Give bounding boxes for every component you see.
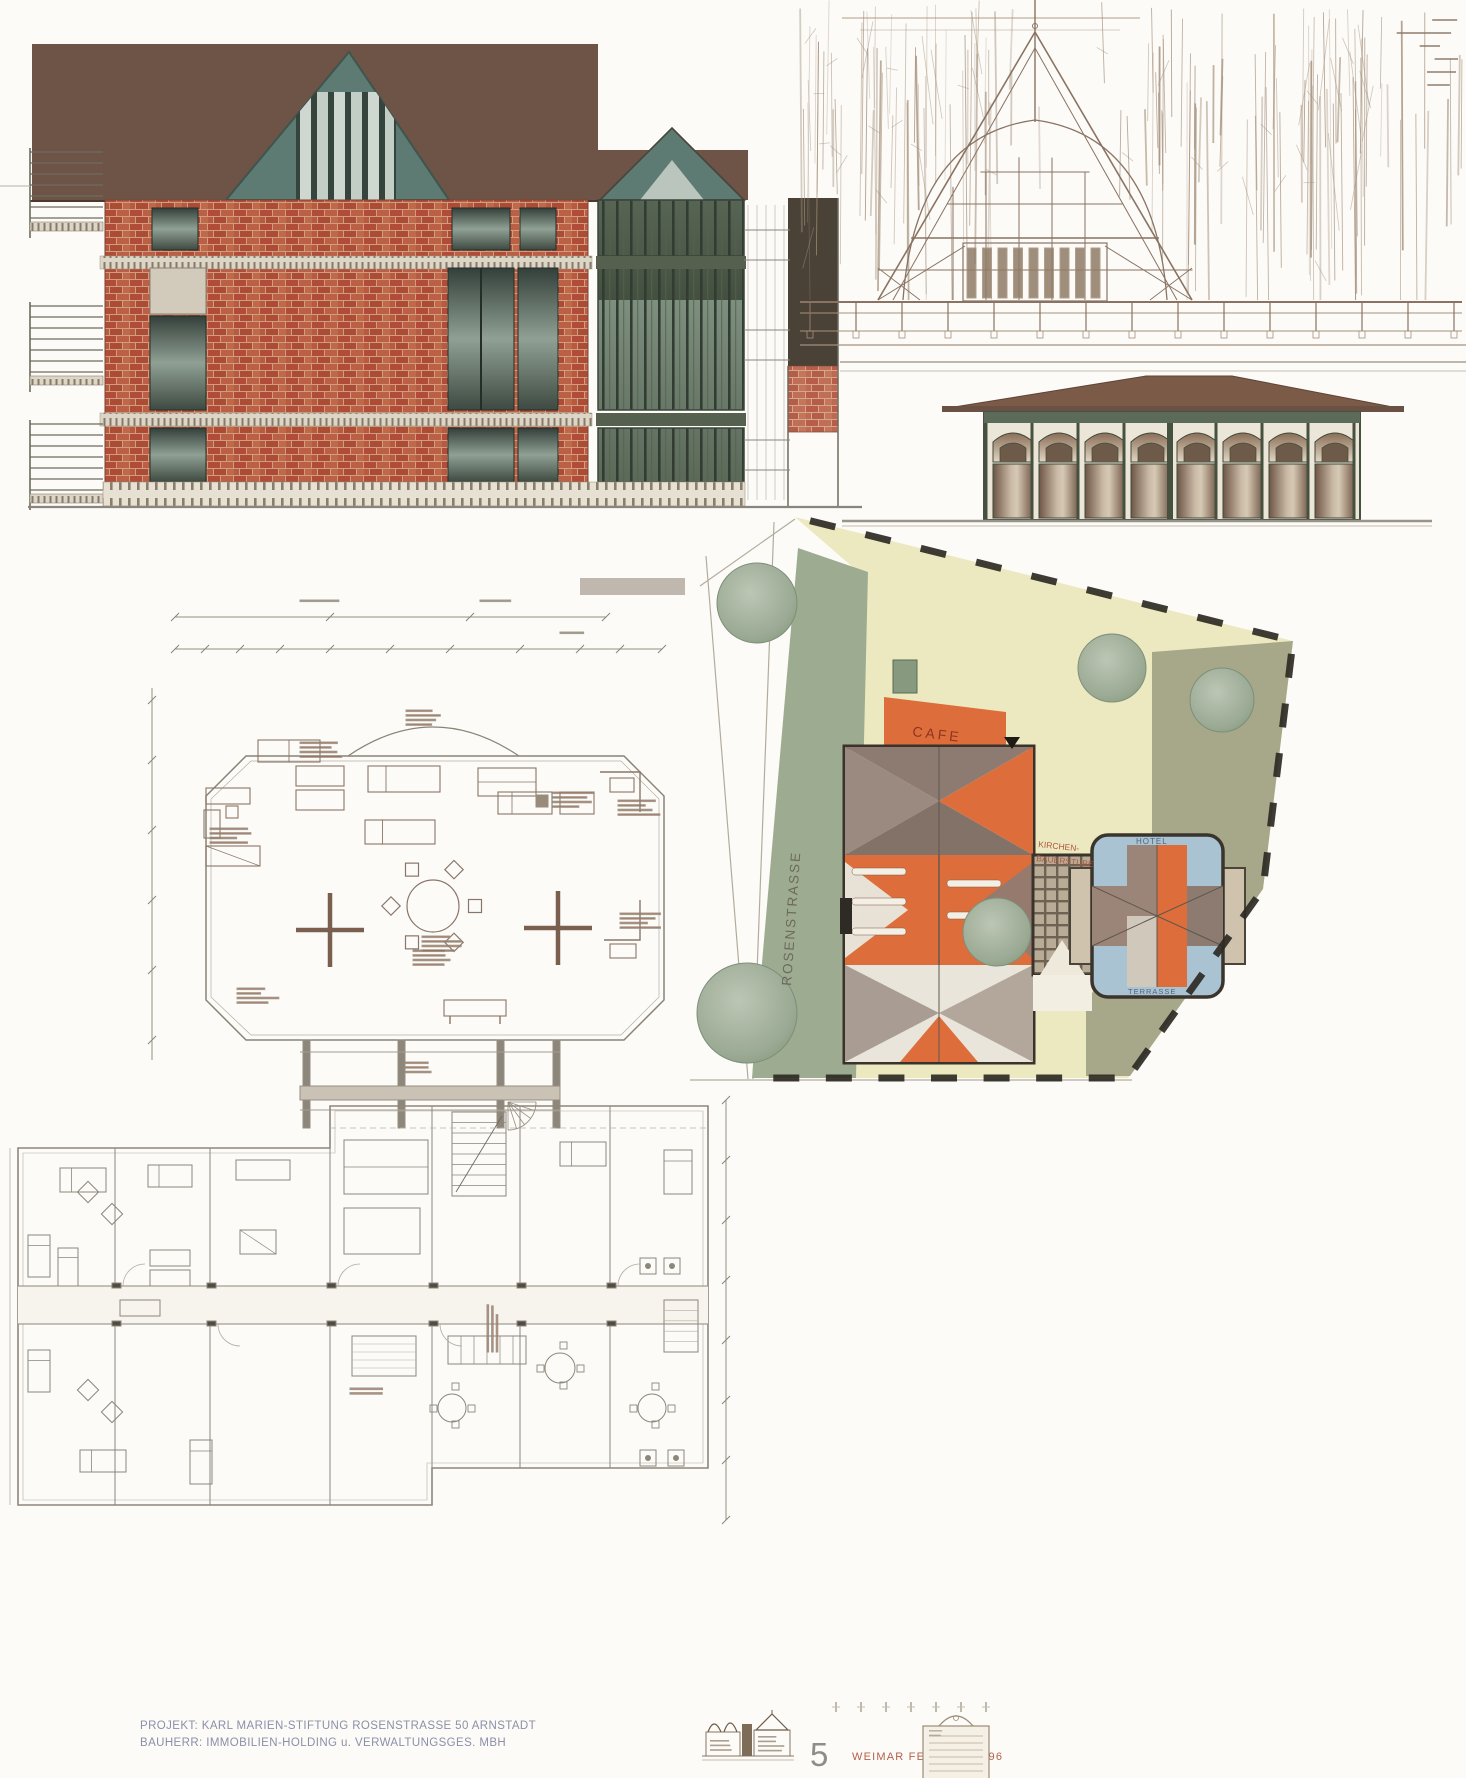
project-line: PROJEKT: KARL MARIEN-STIFTUNG ROSENSTRAS… bbox=[140, 1720, 536, 1732]
hotel-building-roofplan: HOTEL TERRASSE bbox=[1070, 835, 1245, 997]
sheet-number: 5 bbox=[810, 1736, 828, 1773]
floor-slab-band bbox=[100, 256, 592, 269]
client-line: BAUHERR: IMMOBILIEN-HOLDING u. VERWALTUN… bbox=[140, 1737, 506, 1749]
hotel-label: HOTEL bbox=[1136, 837, 1168, 846]
stair-core-section bbox=[788, 198, 838, 366]
floor-slab-band bbox=[100, 413, 592, 426]
sheet-canvas: CAFE bbox=[0, 0, 1466, 1778]
drawing-sheet: CAFE bbox=[0, 0, 1466, 1778]
plinth-band bbox=[103, 482, 745, 506]
glazed-wing bbox=[596, 200, 746, 482]
terrace-label: TERRASSE bbox=[1128, 987, 1176, 996]
gable-window-strips bbox=[296, 92, 396, 200]
